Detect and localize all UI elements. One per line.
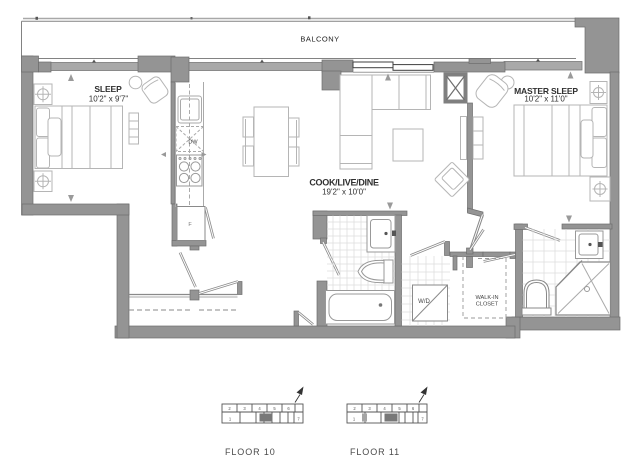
svg-text:W/D: W/D [418, 299, 430, 305]
svg-text:BALCONY: BALCONY [300, 35, 339, 44]
svg-text:SLEEP: SLEEP [94, 84, 122, 94]
svg-text:FLOOR 10: FLOOR 10 [225, 447, 276, 457]
svg-text:WALK-IN: WALK-IN [475, 295, 498, 301]
svg-text:10'2" x 11'0": 10'2" x 11'0" [524, 95, 567, 104]
svg-text:COOK/LIVE/DINE: COOK/LIVE/DINE [309, 178, 379, 188]
svg-text:FLOOR 11: FLOOR 11 [350, 447, 400, 457]
svg-text:19'2" x 10'0": 19'2" x 10'0" [322, 188, 366, 197]
svg-text:CLOSET: CLOSET [476, 302, 499, 308]
svg-text:DW: DW [188, 140, 198, 146]
svg-text:10'2" x 9'7": 10'2" x 9'7" [89, 95, 129, 104]
